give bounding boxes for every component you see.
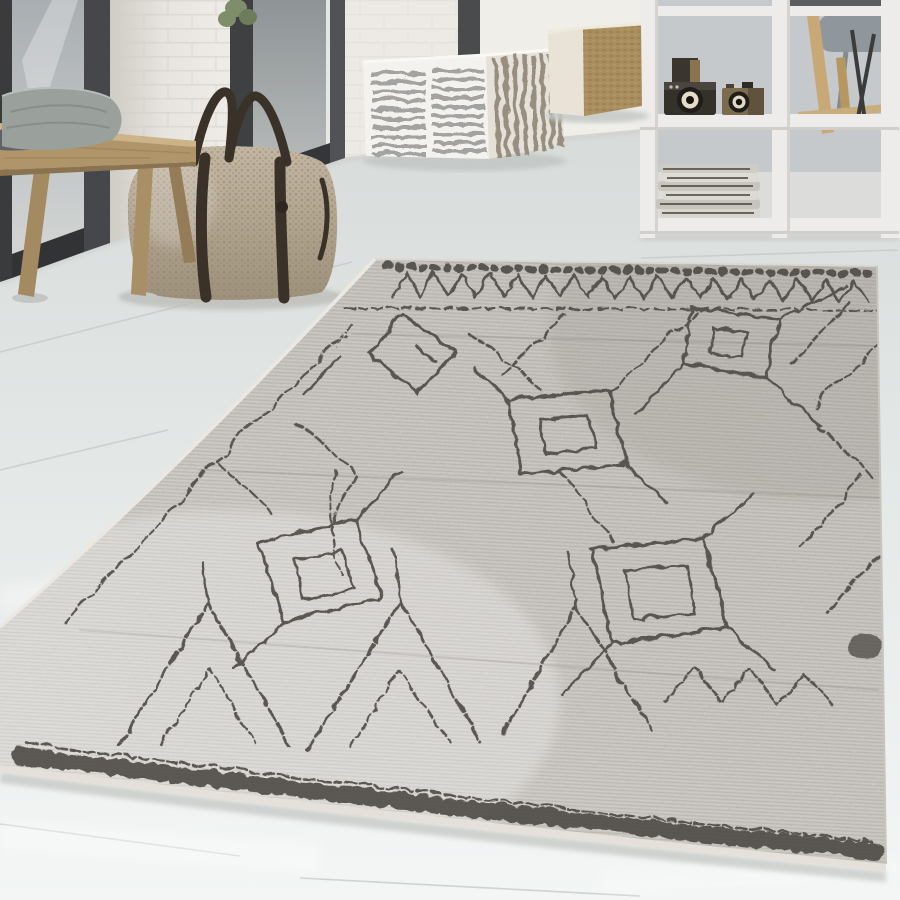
cushion-light: [2, 88, 122, 150]
door-frame: [330, 0, 345, 163]
bag-button: [276, 201, 288, 213]
pouf-cream-face: [548, 28, 584, 116]
bench-cushions: [0, 88, 122, 151]
magazine-stack: [656, 164, 760, 218]
product-photo-scene: [0, 0, 900, 900]
shelf-shadow: [640, 234, 899, 241]
